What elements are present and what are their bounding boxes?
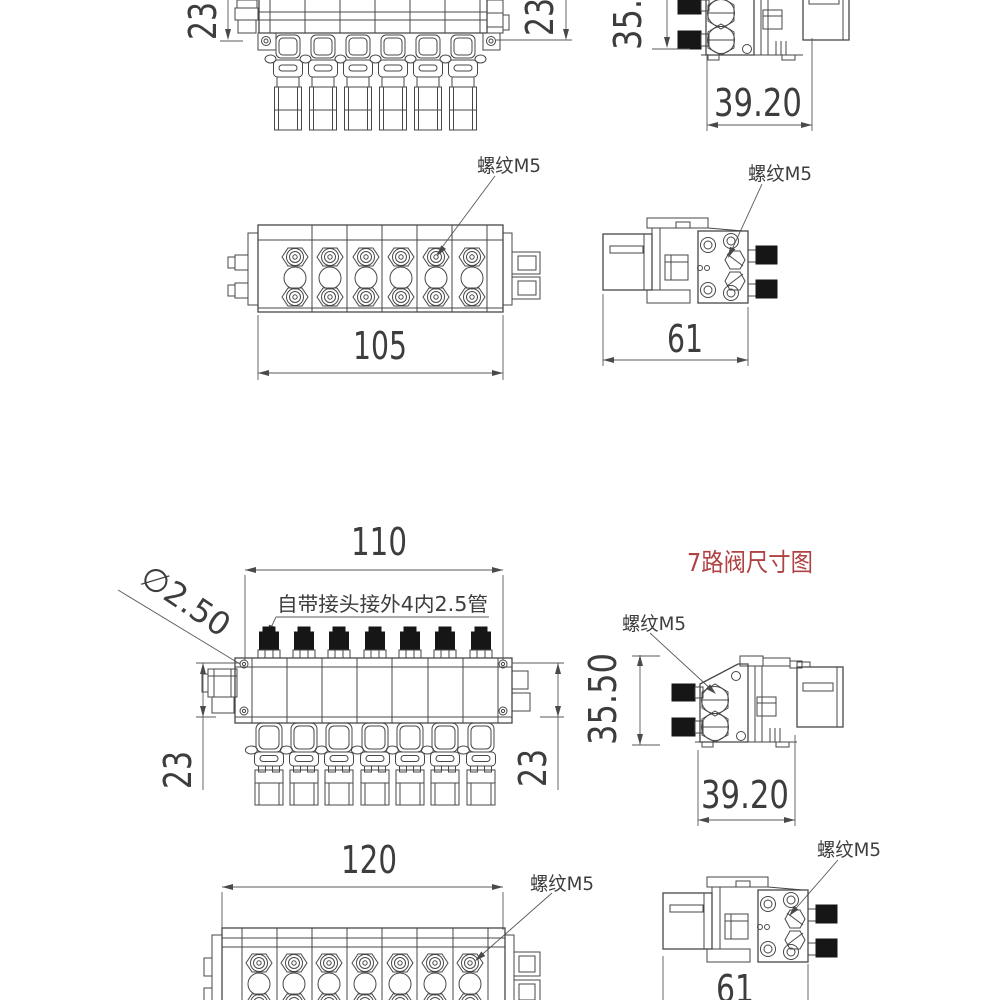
valve-station: [370, 35, 408, 130]
dim-120: 120: [341, 838, 397, 882]
valve-station: [280, 627, 318, 805]
port-column: [282, 248, 308, 306]
side-valve-body: [603, 218, 777, 303]
valve-station: [440, 35, 478, 130]
dim-61-6way: 61: [667, 317, 703, 361]
port-column: [388, 248, 414, 306]
valve-station: [245, 627, 283, 805]
dim-23-top-right: 23: [518, 0, 562, 36]
valve-station: [421, 627, 459, 805]
port-column: [352, 954, 378, 1000]
thread-label-6way-side: 螺纹M5: [748, 163, 812, 185]
dim-105: 105: [353, 324, 407, 368]
view-7way-side: 螺纹M5 35.50 39.20: [581, 613, 843, 826]
thread-label-7way-bottom: 螺纹M5: [530, 873, 594, 895]
side-valve-body: [678, 0, 849, 60]
drawing-title: 7路阀尺寸图: [687, 548, 813, 577]
dim-23-7way-left: 23: [156, 751, 200, 789]
port-column: [423, 248, 449, 306]
thread-label-7way-side: 螺纹M5: [622, 613, 686, 635]
dim-39-20-7way: 39.20: [701, 773, 789, 817]
view-7way-front: 110 ∅2.50 自带接头接外4内2.5管: [118, 520, 564, 805]
view-7way-side-bottom: 螺纹M5 61: [663, 839, 881, 1000]
port-column: [457, 954, 483, 1000]
view-6way-front-top: 23 23: [181, 0, 572, 130]
valve-station: [335, 35, 373, 130]
valve-station: [405, 35, 443, 130]
valve-station: [265, 35, 303, 130]
port-column: [422, 954, 448, 1000]
side-valve-body: [672, 656, 843, 747]
port-column: [353, 248, 379, 306]
note-fitting: 自带接头接外4内2.5管: [277, 592, 488, 616]
thread-label-7way-side-b: 螺纹M5: [817, 839, 881, 861]
view-6way-side: 螺纹M5 61: [603, 163, 812, 366]
dim-35-50-top: 35.50: [606, 0, 650, 50]
view-6way-side-top: 35.50 39.20: [606, 0, 849, 131]
valve-station: [315, 627, 353, 805]
port-column: [316, 954, 342, 1000]
view-7way-bottom: 120 螺纹M5: [204, 838, 594, 1000]
dim-110: 110: [351, 520, 407, 564]
side-valve-body: [663, 877, 837, 962]
drawing-page: 23 23 35.50 39.20 螺纹M5: [0, 0, 1000, 1000]
dim-39-20-top: 39.20: [714, 81, 802, 125]
dim-23-top-left: 23: [181, 2, 225, 40]
dim-61-7way: 61: [716, 967, 754, 1000]
port-column: [246, 954, 272, 1000]
dim-35-50-7way: 35.50: [581, 653, 625, 745]
port-column: [281, 954, 307, 1000]
thread-label-6way-bottom: 螺纹M5: [477, 155, 541, 177]
valve-station: [300, 35, 338, 130]
port-column: [387, 954, 413, 1000]
dim-23-7way-right: 23: [511, 749, 555, 787]
port-column: [317, 248, 343, 306]
drawing-canvas: 23 23 35.50 39.20 螺纹M5: [0, 0, 1000, 1000]
view-6way-bottom: 螺纹M5 105: [228, 155, 541, 380]
port-column: [459, 248, 485, 306]
